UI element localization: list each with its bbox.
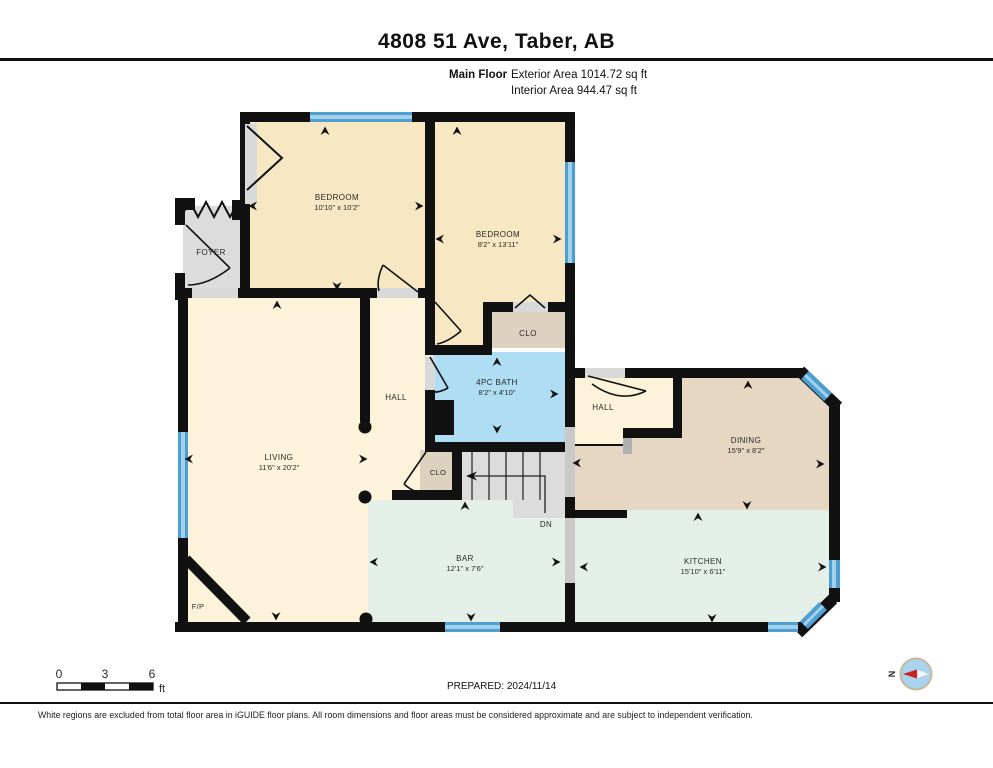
room-closet-upper [490, 308, 568, 348]
closet-upper-label: CLO [519, 329, 537, 338]
compass-n-label: N [887, 671, 897, 678]
scale-tick-3: 3 [102, 667, 109, 681]
disclaimer-text: White regions are excluded from total fl… [38, 710, 968, 720]
scale-bar: 0 3 6 ft [56, 667, 165, 695]
window-kitchen-bottom [768, 622, 798, 632]
bedroom1-closet-strip [245, 124, 257, 204]
compass: N [887, 659, 932, 690]
dining-label: DINING15'9" x 8'2" [728, 436, 765, 455]
closet-stairs-label: CLO [430, 468, 446, 477]
scale-bar-segment [129, 683, 153, 690]
hall-right-label: HALL [592, 403, 614, 412]
stairs-exit-floor [513, 500, 565, 518]
hall-center-label: HALL [385, 393, 407, 402]
kitchen-label: KITCHEN15'10" x 6'11" [681, 557, 726, 576]
column-post [360, 613, 373, 626]
foyer-label: FOYER [196, 248, 226, 257]
scale-unit-label: ft [159, 683, 165, 695]
footer-divider [0, 702, 993, 704]
window-bedroom1-top [310, 112, 412, 122]
fireplace-label: F/P [192, 602, 205, 611]
window-kitchen-right [829, 560, 840, 588]
scale-bar-segment [81, 683, 105, 690]
bedroom2-label: BEDROOM8'2" x 13'11" [476, 230, 520, 249]
window-bedroom2-right [565, 162, 575, 263]
scale-tick-6: 6 [149, 667, 156, 681]
prepared-date: PREPARED: 2024/11/14 [447, 681, 556, 692]
window-living-left [178, 432, 188, 538]
stairs-dn-label: DN [540, 520, 552, 529]
bath-label: 4PC BATH8'2" x 4'10" [476, 378, 518, 397]
window-bar-bottom [445, 622, 500, 632]
room-bedroom-2 [433, 118, 569, 305]
floor-plan: BEDROOM10'10" x 10'2" BEDROOM8'2" x 13'1… [0, 0, 993, 768]
column-post [359, 491, 372, 504]
hall-right-stub [623, 438, 632, 454]
column-post [359, 421, 372, 434]
scale-tick-0: 0 [56, 667, 63, 681]
bedroom1-label: BEDROOM10'10" x 10'2" [314, 193, 360, 212]
